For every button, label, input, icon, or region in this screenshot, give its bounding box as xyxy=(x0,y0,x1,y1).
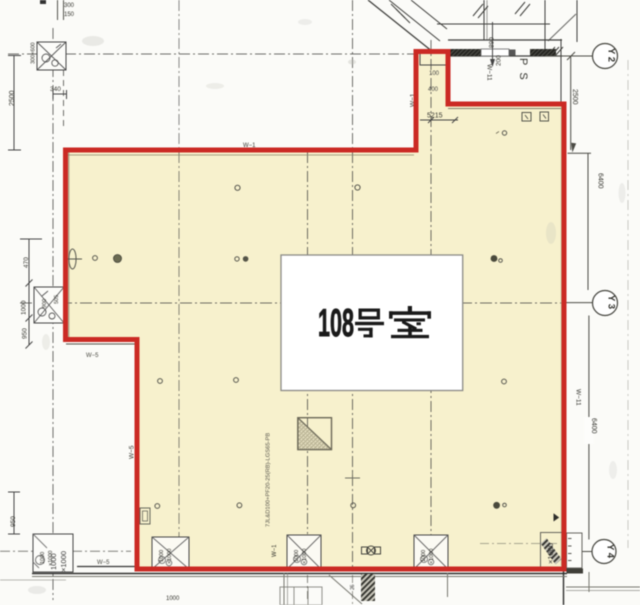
svg-text:Y 2: Y 2 xyxy=(606,48,617,62)
svg-text:Y 3: Y 3 xyxy=(606,295,617,309)
svg-text:6400: 6400 xyxy=(590,418,597,434)
svg-text:900: 900 xyxy=(42,299,48,308)
svg-text:W−5: W−5 xyxy=(129,445,136,459)
svg-text:400: 400 xyxy=(428,87,439,93)
svg-text:×1000: ×1000 xyxy=(48,551,54,566)
svg-text:108: 108 xyxy=(318,302,354,345)
svg-text:1000: 1000 xyxy=(421,550,427,562)
svg-text:Y 4: Y 4 xyxy=(605,544,616,559)
svg-text:2500: 2500 xyxy=(571,89,578,105)
svg-text:470: 470 xyxy=(23,257,30,268)
svg-text:PS: PS xyxy=(517,58,529,87)
svg-text:×1000: ×1000 xyxy=(429,549,435,564)
svg-text:300: 300 xyxy=(64,3,75,9)
svg-text:150: 150 xyxy=(64,12,75,18)
svg-text:100: 100 xyxy=(429,71,440,77)
svg-text:5215: 5215 xyxy=(427,113,443,120)
svg-text:W−1: W−1 xyxy=(272,544,278,557)
svg-text:1000: 1000 xyxy=(159,550,165,562)
svg-text:×1000: ×1000 xyxy=(302,549,308,564)
svg-text:7JL&D100+PF20-25(RB)-LGS65-PB: 7JL&D100+PF20-25(RB)-LGS65-PB xyxy=(266,433,272,527)
svg-text:1000: 1000 xyxy=(21,300,28,315)
svg-text:1000: 1000 xyxy=(294,550,300,562)
svg-text:200: 200 xyxy=(496,55,503,66)
svg-text:W−5: W−5 xyxy=(86,353,99,359)
svg-text:300×600: 300×600 xyxy=(31,42,37,64)
svg-text:6400: 6400 xyxy=(597,173,604,189)
svg-text:W−11: W−11 xyxy=(575,389,582,406)
svg-text:1000: 1000 xyxy=(40,552,46,564)
svg-text:890: 890 xyxy=(489,37,496,48)
svg-text:950: 950 xyxy=(22,328,29,339)
svg-text:25: 25 xyxy=(350,584,356,590)
svg-text:950: 950 xyxy=(10,516,17,527)
svg-text:×1000: ×1000 xyxy=(167,549,173,564)
svg-text:×1000: ×1000 xyxy=(546,543,555,564)
svg-text:×1000: ×1000 xyxy=(59,551,68,572)
svg-text:W−11: W−11 xyxy=(486,64,493,81)
svg-text:W−5: W−5 xyxy=(97,560,110,566)
svg-text:2500: 2500 xyxy=(9,90,16,106)
svg-text:340: 340 xyxy=(50,86,61,93)
svg-text:505: 505 xyxy=(54,295,60,304)
svg-text:1000: 1000 xyxy=(166,596,180,602)
